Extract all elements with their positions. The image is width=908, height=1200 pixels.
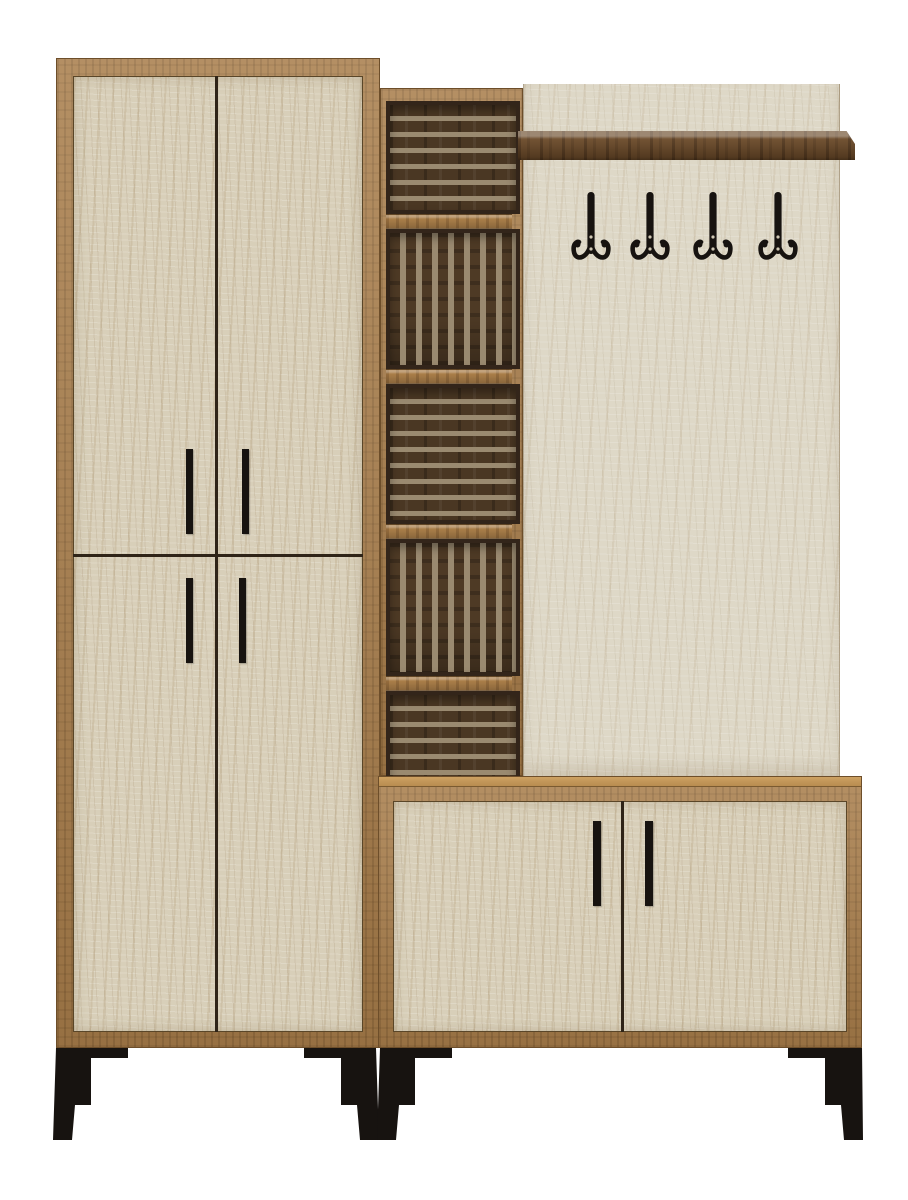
cabinet-leg <box>788 1048 863 1140</box>
coat-hooks-row <box>0 190 908 274</box>
cabinet-leg <box>53 1048 128 1140</box>
slatted-cubby <box>386 539 520 676</box>
shoe-cabinet-doors <box>393 801 847 1032</box>
shoe-cabinet <box>378 776 862 1048</box>
cubby-divider <box>386 369 512 384</box>
door-handle <box>645 821 653 906</box>
slatted-cubby <box>386 384 520 524</box>
cubby-divider <box>386 676 512 691</box>
door-seam <box>621 801 624 1032</box>
cabinet-top-face <box>379 777 861 787</box>
coat-hook-icon <box>630 190 670 264</box>
coat-shelf <box>518 131 855 160</box>
coat-hook-icon <box>693 190 733 264</box>
coat-panel <box>523 84 840 776</box>
coat-hook <box>630 190 670 264</box>
cubby-divider <box>386 524 512 539</box>
door-handle <box>242 449 249 534</box>
door-seam <box>73 554 363 557</box>
coat-hook-icon <box>758 190 798 264</box>
door-handle <box>593 821 601 906</box>
coat-hook <box>571 190 611 264</box>
door-handle <box>239 578 246 663</box>
coat-hook-icon <box>571 190 611 264</box>
product-photo <box>0 0 908 1200</box>
door-handle <box>186 449 193 534</box>
coat-hook <box>758 190 798 264</box>
cabinet-leg <box>377 1048 452 1140</box>
coat-hook <box>693 190 733 264</box>
door-handle <box>186 578 193 663</box>
cabinet-leg <box>304 1048 379 1140</box>
